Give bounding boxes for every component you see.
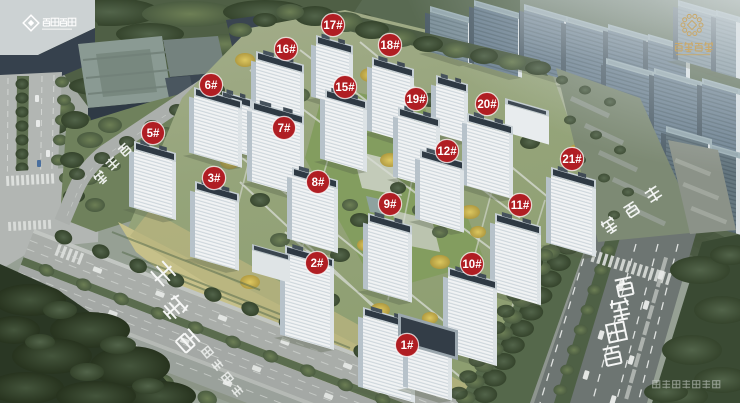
svg-text:20#: 20# <box>477 99 497 111</box>
svg-text:2#: 2# <box>311 258 324 270</box>
svg-text:21#: 21# <box>562 154 582 166</box>
svg-text:11#: 11# <box>511 200 530 212</box>
svg-text:16#: 16# <box>276 44 296 56</box>
svg-text:5#: 5# <box>147 128 160 140</box>
svg-text:1#: 1# <box>401 340 414 352</box>
svg-text:9#: 9# <box>384 199 397 211</box>
svg-text:15#: 15# <box>335 82 355 94</box>
svg-text:12#: 12# <box>437 146 457 158</box>
svg-text:18#: 18# <box>380 40 400 52</box>
svg-text:3#: 3# <box>208 173 221 185</box>
svg-text:8#: 8# <box>312 177 325 189</box>
svg-text:10#: 10# <box>462 259 482 271</box>
svg-text:19#: 19# <box>406 94 426 106</box>
svg-text:7#: 7# <box>278 123 291 135</box>
svg-text:17#: 17# <box>323 20 343 32</box>
svg-text:6#: 6# <box>205 80 218 92</box>
